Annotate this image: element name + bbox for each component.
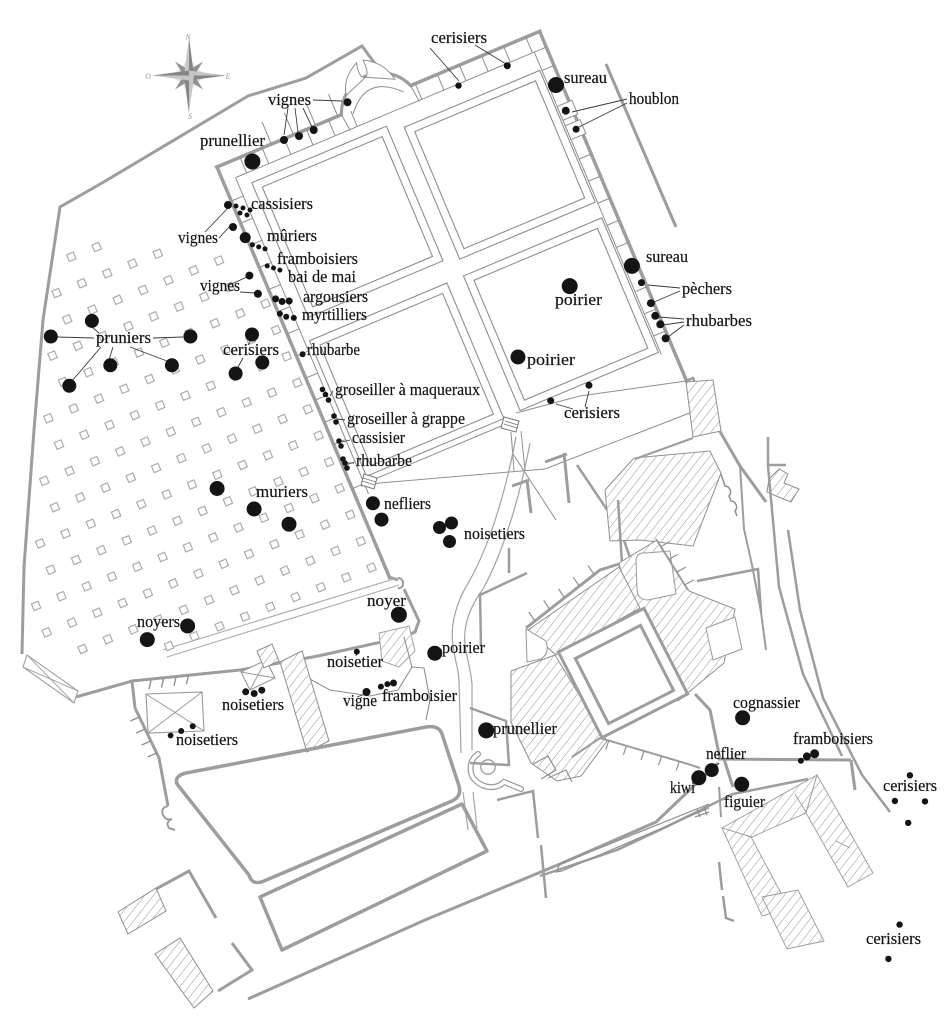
svg-text:E: E	[225, 72, 231, 81]
svg-text:framboisier: framboisier	[382, 686, 457, 705]
svg-text:pruniers: pruniers	[96, 328, 151, 347]
svg-text:poirier: poirier	[527, 350, 575, 369]
svg-text:prunellier: prunellier	[493, 719, 557, 738]
svg-text:O: O	[145, 72, 151, 81]
svg-text:cerisiers: cerisiers	[866, 929, 921, 948]
svg-text:groseiller à maqueraux: groseiller à maqueraux	[335, 380, 480, 399]
svg-text:cassisiers: cassisiers	[251, 194, 313, 213]
svg-text:cassisier: cassisier	[352, 428, 405, 447]
svg-text:pèchers: pèchers	[682, 279, 732, 298]
svg-text:sureau: sureau	[564, 68, 607, 87]
svg-text:vignes: vignes	[200, 276, 240, 295]
svg-text:noisetiers: noisetiers	[464, 524, 525, 543]
svg-text:vigne: vigne	[343, 691, 377, 710]
svg-text:figuier: figuier	[724, 792, 765, 811]
svg-text:sureau: sureau	[646, 247, 688, 266]
svg-text:framboisiers: framboisiers	[793, 729, 873, 748]
svg-text:mûriers: mûriers	[267, 226, 317, 245]
svg-text:S: S	[188, 112, 192, 121]
svg-text:prunellier: prunellier	[200, 131, 265, 150]
svg-text:bai de mai: bai de mai	[288, 267, 356, 286]
svg-text:N: N	[184, 33, 191, 42]
svg-text:kiwi: kiwi	[670, 778, 695, 797]
svg-text:noisetiers: noisetiers	[222, 695, 284, 714]
svg-text:rhubarbe: rhubarbe	[356, 451, 412, 470]
svg-text:poirier: poirier	[555, 290, 602, 309]
svg-text:vignes: vignes	[268, 90, 311, 109]
svg-text:vignes: vignes	[178, 228, 218, 247]
svg-text:noyers: noyers	[137, 612, 180, 631]
svg-text:groseiller à grappe: groseiller à grappe	[347, 409, 465, 428]
svg-text:muriers: muriers	[256, 482, 308, 501]
svg-text:rhubarbe: rhubarbe	[307, 340, 360, 359]
svg-text:rhubarbes: rhubarbes	[686, 311, 752, 330]
svg-text:houblon: houblon	[629, 89, 679, 108]
svg-text:noisetiers: noisetiers	[176, 730, 238, 749]
svg-text:cerisiers: cerisiers	[223, 340, 279, 359]
svg-text:neflier: neflier	[706, 744, 746, 763]
svg-text:argousiers: argousiers	[303, 287, 368, 306]
svg-text:cerisiers: cerisiers	[564, 403, 620, 422]
svg-text:noisetier: noisetier	[327, 652, 383, 671]
svg-text:poirier: poirier	[442, 638, 485, 657]
svg-text:cerisiers: cerisiers	[431, 28, 487, 47]
svg-text:myrtilliers: myrtilliers	[302, 305, 367, 324]
svg-text:cognassier: cognassier	[733, 693, 800, 712]
svg-text:nefliers: nefliers	[384, 494, 431, 513]
svg-text:cerisiers: cerisiers	[883, 776, 937, 795]
svg-text:framboisiers: framboisiers	[277, 249, 358, 268]
svg-text:noyer: noyer	[367, 591, 406, 610]
